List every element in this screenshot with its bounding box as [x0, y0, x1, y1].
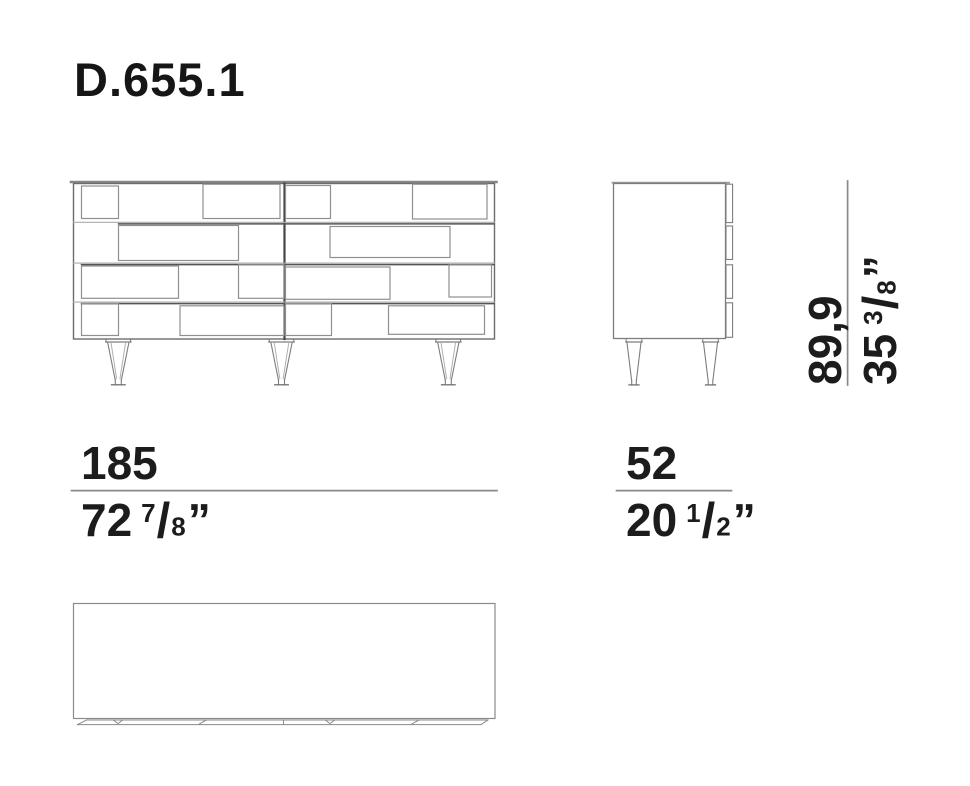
depth-imperial-unit: ” [733, 494, 756, 546]
height-imperial-unit: ” [854, 255, 906, 278]
furniture-spec-sheet: D.655.1 [0, 0, 970, 786]
width-imperial-value: 727/8” [81, 497, 211, 546]
plan-view-drawing [74, 604, 496, 725]
width-imperial-slash: / [157, 494, 171, 548]
width-imperial-unit: ” [188, 494, 211, 546]
depth-imperial-value: 201/2” [626, 497, 756, 546]
height-imperial-value: 353/8” [857, 255, 906, 385]
width-metric-value: 185 [81, 440, 158, 486]
height-imperial-numerator: 3 [858, 310, 888, 324]
height-metric-value: 89,9 [802, 295, 848, 385]
front-legs [106, 340, 461, 385]
depth-imperial-slash: / [702, 494, 716, 548]
width-imperial-numerator: 7 [141, 498, 155, 528]
width-imperial-denominator: 8 [171, 512, 185, 542]
height-imperial-denominator: 8 [872, 280, 902, 294]
height-imperial-slash: / [854, 296, 908, 310]
side-legs [626, 340, 719, 385]
depth-metric-value: 52 [626, 440, 677, 486]
technical-drawing [0, 0, 970, 786]
depth-imperial-whole: 20 [626, 494, 677, 546]
height-imperial-whole: 35 [854, 334, 906, 385]
depth-imperial-denominator: 2 [716, 512, 730, 542]
side-view-drawing [613, 183, 733, 385]
front-view-drawing [71, 182, 497, 385]
width-imperial-whole: 72 [81, 494, 132, 546]
depth-imperial-numerator: 1 [686, 498, 700, 528]
drawer-edge-profiles [726, 184, 733, 337]
drawer-panels [82, 184, 492, 335]
